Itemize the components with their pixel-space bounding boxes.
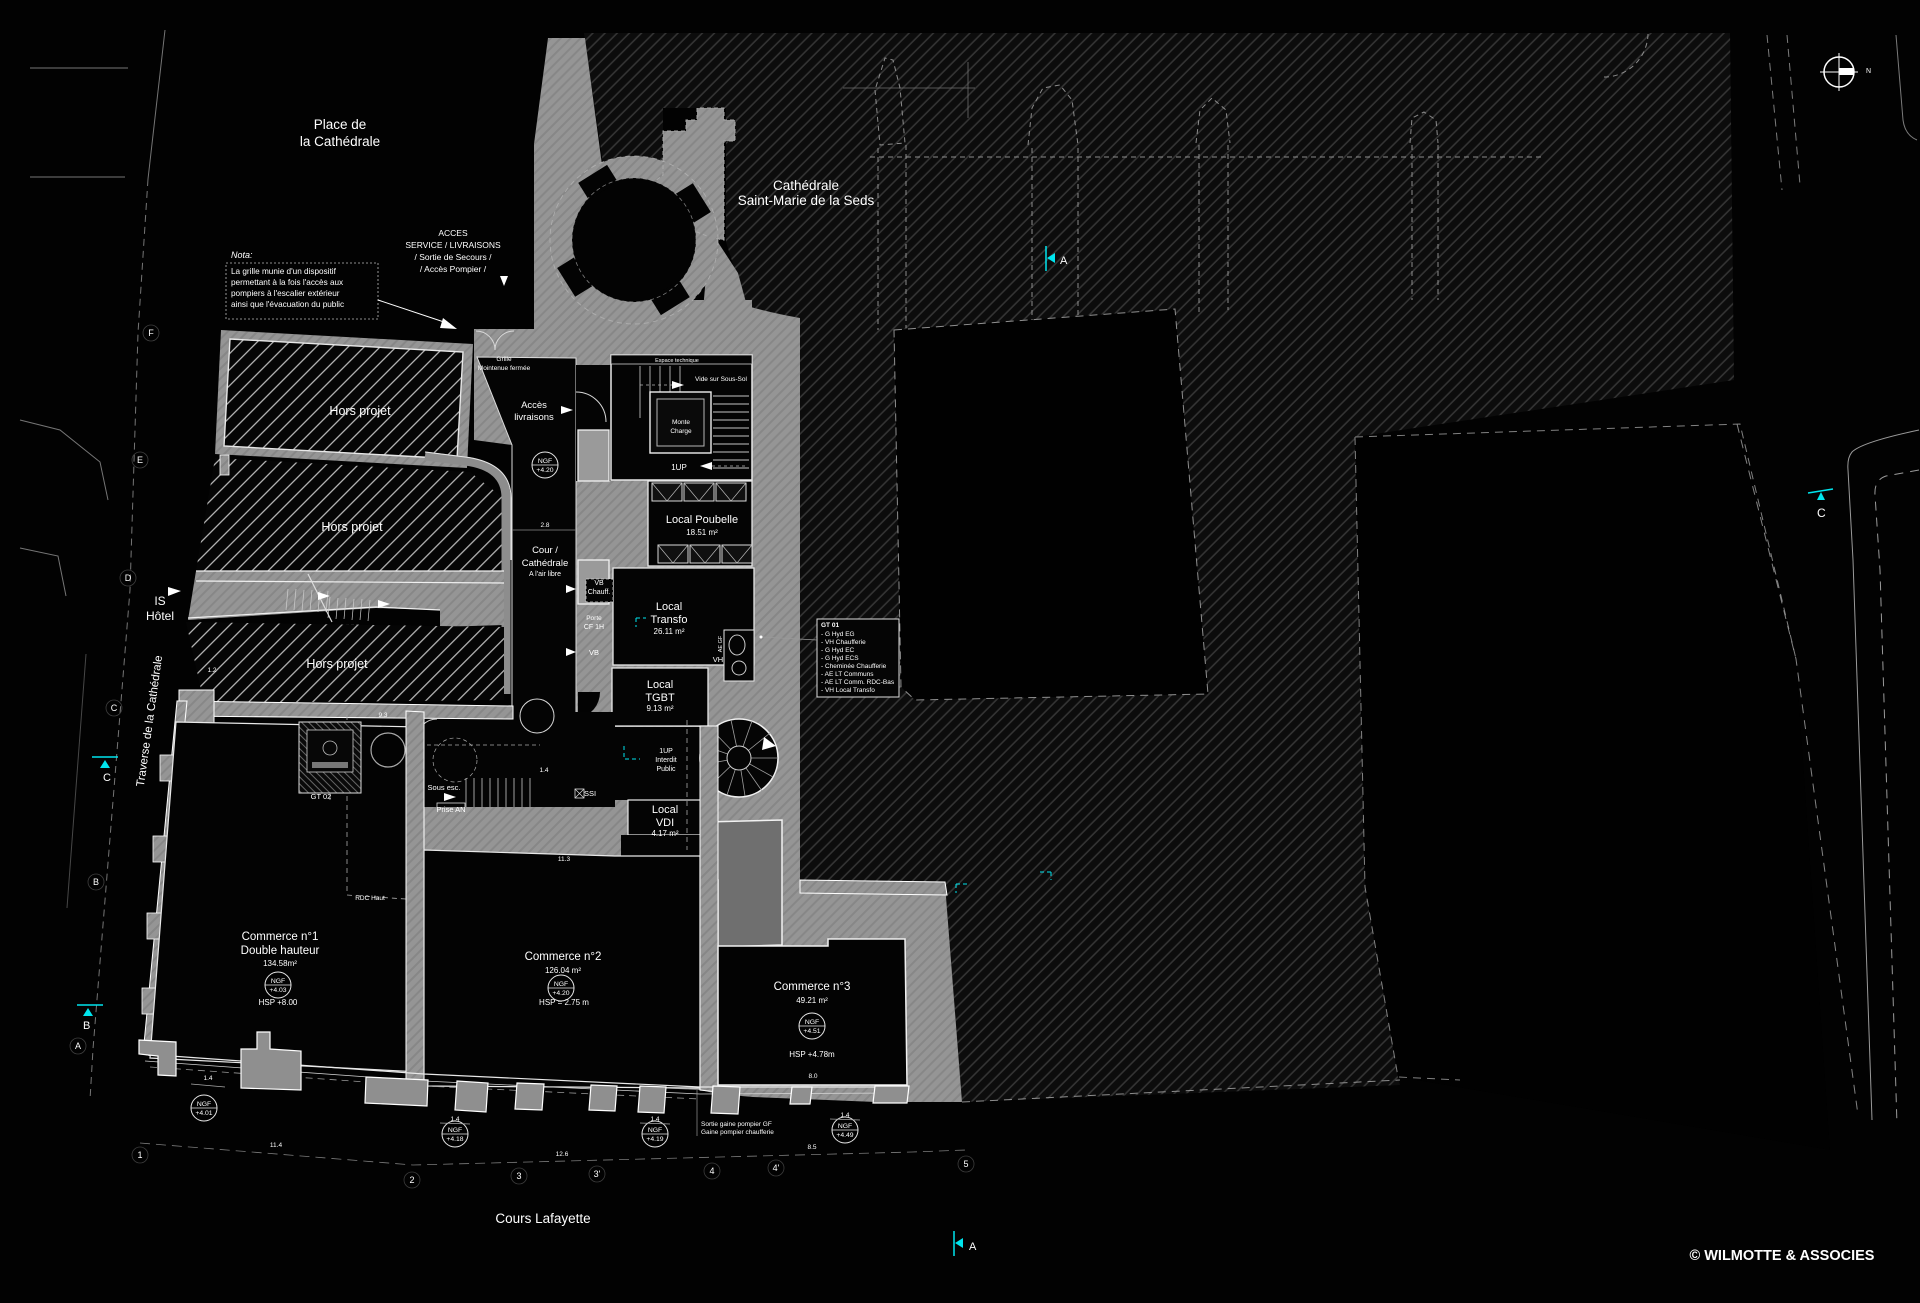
svg-text:+4.49: +4.49 [836, 1132, 853, 1139]
svg-text:E: E [137, 455, 143, 465]
svg-text:+4.51: +4.51 [803, 1028, 820, 1035]
svg-text:NGF: NGF [838, 1123, 852, 1130]
svg-text:134.58m²: 134.58m² [263, 959, 297, 968]
svg-text:Accès: Accès [521, 400, 547, 411]
svg-text:N: N [1866, 68, 1871, 75]
svg-text:NGF: NGF [271, 978, 285, 985]
svg-text:Sous esc.: Sous esc. [428, 783, 461, 792]
svg-text:Double hauteur: Double hauteur [241, 945, 320, 957]
svg-text:8.0: 8.0 [808, 1073, 817, 1080]
svg-text:NGF: NGF [448, 1127, 462, 1134]
svg-text:1.4: 1.4 [203, 1075, 212, 1082]
svg-text:C: C [1817, 506, 1826, 520]
svg-text:- Cheminée Chaufferie: - Cheminée Chaufferie [821, 663, 887, 670]
svg-text:/ Sortie de Secours /: / Sortie de Secours / [414, 252, 492, 262]
svg-text:4': 4' [773, 1163, 780, 1173]
svg-text:Local: Local [652, 804, 678, 816]
svg-text:- G Hyd EG: - G Hyd EG [821, 631, 855, 638]
svg-text:F: F [148, 328, 154, 338]
svg-text:A: A [1060, 255, 1068, 267]
svg-text:Cours Lafayette: Cours Lafayette [495, 1211, 590, 1226]
svg-text:Mointenue fermée: Mointenue fermée [478, 365, 531, 372]
svg-text:- VH Chaufferie: - VH Chaufferie [821, 639, 866, 646]
svg-text:1.4: 1.4 [840, 1112, 849, 1119]
svg-text:B: B [83, 1020, 90, 1032]
svg-text:Local Poubelle: Local Poubelle [666, 514, 738, 526]
svg-text:livraisons: livraisons [514, 412, 554, 423]
svg-text:+4.20: +4.20 [552, 990, 569, 997]
svg-text:HSP +4.78m: HSP +4.78m [789, 1050, 835, 1059]
svg-text:Local: Local [647, 679, 673, 691]
svg-text:TGBT: TGBT [645, 692, 675, 704]
svg-text:+4.01: +4.01 [195, 1110, 212, 1117]
svg-text:1UP: 1UP [671, 463, 687, 472]
svg-text:1UP: 1UP [659, 748, 673, 755]
svg-text:Hors projet: Hors projet [321, 520, 383, 534]
svg-text:NGF: NGF [554, 981, 568, 988]
svg-text:ACCES: ACCES [438, 228, 468, 238]
svg-text:NGF: NGF [197, 1101, 211, 1108]
svg-text:HSP = 2.75 m: HSP = 2.75 m [539, 998, 589, 1007]
svg-text:C: C [111, 703, 118, 713]
svg-text:12.6: 12.6 [556, 1151, 569, 1158]
svg-text:© WILMOTTE & ASSOCIES: © WILMOTTE & ASSOCIES [1690, 1248, 1875, 1264]
svg-text:VB: VB [589, 648, 599, 657]
svg-text:1.4: 1.4 [539, 767, 548, 774]
svg-text:Hors projet: Hors projet [329, 404, 391, 418]
svg-text:Grille: Grille [496, 356, 512, 363]
svg-text:VB: VB [594, 580, 604, 587]
svg-text:Prise AN: Prise AN [436, 805, 465, 814]
svg-text:Sortie gaine pompier GF: Sortie gaine pompier GF [701, 1121, 772, 1128]
svg-text:26.11 m²: 26.11 m² [654, 627, 685, 636]
svg-text:VDI: VDI [656, 817, 674, 829]
svg-text:+4.03: +4.03 [269, 987, 286, 994]
svg-text:/ Accès Pompier /: / Accès Pompier / [420, 264, 487, 274]
svg-text:Cour /: Cour / [532, 545, 558, 556]
svg-text:1.2: 1.2 [207, 667, 216, 674]
svg-text:1.4: 1.4 [450, 1116, 459, 1123]
svg-text:Saint-Marie de la Seds: Saint-Marie de la Seds [738, 193, 875, 208]
svg-text:9.3: 9.3 [378, 712, 387, 719]
svg-text:Commerce n°2: Commerce n°2 [525, 951, 602, 963]
svg-text:- G Hyd EC: - G Hyd EC [821, 647, 855, 654]
svg-text:A l'air libre: A l'air libre [529, 571, 561, 578]
svg-text:2: 2 [409, 1175, 414, 1185]
svg-text:Cathédrale: Cathédrale [522, 558, 568, 569]
svg-text:4.17 m²: 4.17 m² [651, 829, 678, 838]
svg-text:SSI: SSI [584, 789, 596, 798]
svg-text:A: A [969, 1241, 977, 1253]
svg-text:NGF: NGF [805, 1019, 819, 1026]
svg-text:C: C [103, 772, 111, 784]
svg-text:4: 4 [709, 1166, 714, 1176]
svg-text:Hors projet: Hors projet [306, 657, 368, 671]
svg-text:+4.18: +4.18 [446, 1136, 463, 1143]
svg-text:3': 3' [594, 1169, 601, 1179]
svg-text:Hôtel: Hôtel [146, 609, 174, 623]
svg-text:AE GF: AE GF [718, 635, 724, 652]
svg-text:NGF: NGF [648, 1127, 662, 1134]
svg-text:permettant à la fois l'accès a: permettant à la fois l'accès aux [231, 278, 343, 287]
svg-text:D: D [125, 573, 132, 583]
svg-text:2.8: 2.8 [540, 522, 549, 529]
svg-text:Public: Public [656, 766, 676, 773]
svg-text:Commerce n°1: Commerce n°1 [242, 931, 319, 943]
svg-text:B: B [93, 877, 99, 887]
svg-text:+4.19: +4.19 [646, 1136, 663, 1143]
svg-text:Local: Local [656, 601, 682, 613]
svg-text:126.04 m²: 126.04 m² [545, 966, 581, 975]
svg-text:Interdit: Interdit [655, 757, 676, 764]
svg-text:1.4: 1.4 [650, 1116, 659, 1123]
svg-text:Chauff.: Chauff. [588, 589, 610, 596]
svg-text:Nota:: Nota: [231, 250, 253, 260]
svg-text:Porte: Porte [586, 615, 602, 622]
svg-text:pompiers à l'escalier extérieu: pompiers à l'escalier extérieur [231, 289, 340, 298]
svg-text:3: 3 [516, 1171, 521, 1181]
svg-text:SERVICE / LIVRAISONS: SERVICE / LIVRAISONS [405, 240, 501, 250]
svg-text:Commerce n°3: Commerce n°3 [774, 981, 851, 993]
svg-text:HSP +8.00: HSP +8.00 [259, 998, 298, 1007]
svg-text:- AE LT Communs: - AE LT Communs [821, 671, 874, 678]
svg-text:NGF: NGF [538, 458, 552, 465]
svg-text:11.3: 11.3 [558, 856, 571, 863]
svg-text:Gaine pompier chaufferie: Gaine pompier chaufferie [701, 1129, 774, 1136]
svg-text:Espace technique: Espace technique [655, 358, 699, 364]
svg-text:- VH Local Transfo: - VH Local Transfo [821, 687, 875, 694]
svg-text:La grille munie d'un dispositi: La grille munie d'un dispositif [231, 267, 337, 276]
svg-text:+4.20: +4.20 [536, 467, 553, 474]
svg-text:Monte: Monte [672, 419, 690, 426]
svg-text:Vide sur Sous-Sol: Vide sur Sous-Sol [695, 376, 747, 383]
svg-text:RDC Haut: RDC Haut [355, 895, 385, 902]
svg-text:GT 02: GT 02 [311, 792, 332, 801]
svg-text:5: 5 [963, 1159, 968, 1169]
svg-text:11.4: 11.4 [270, 1142, 283, 1149]
svg-text:18.51 m²: 18.51 m² [686, 528, 718, 537]
svg-text:Place de: Place de [314, 117, 367, 132]
svg-text:Cathédrale: Cathédrale [773, 178, 839, 193]
svg-text:49.21 m²: 49.21 m² [796, 996, 828, 1005]
svg-text:la Cathédrale: la Cathédrale [300, 134, 380, 149]
svg-text:- AE LT Comm. RDC-Bas: - AE LT Comm. RDC-Bas [821, 679, 895, 686]
svg-text:IS: IS [154, 594, 165, 608]
svg-text:Charge: Charge [670, 428, 692, 435]
svg-text:A: A [75, 1041, 81, 1051]
svg-text:CF 1H: CF 1H [584, 624, 604, 631]
svg-text:Transfo: Transfo [651, 614, 688, 626]
svg-text:- G Hyd ECS: - G Hyd ECS [821, 655, 859, 662]
svg-text:GT 01: GT 01 [821, 622, 839, 629]
svg-text:1: 1 [137, 1150, 142, 1160]
svg-text:ainsi que l'évacuation du publ: ainsi que l'évacuation du public [231, 300, 344, 309]
svg-text:VH: VH [713, 655, 723, 664]
svg-text:8.5: 8.5 [807, 1144, 816, 1151]
svg-text:9.13 m²: 9.13 m² [646, 704, 673, 713]
